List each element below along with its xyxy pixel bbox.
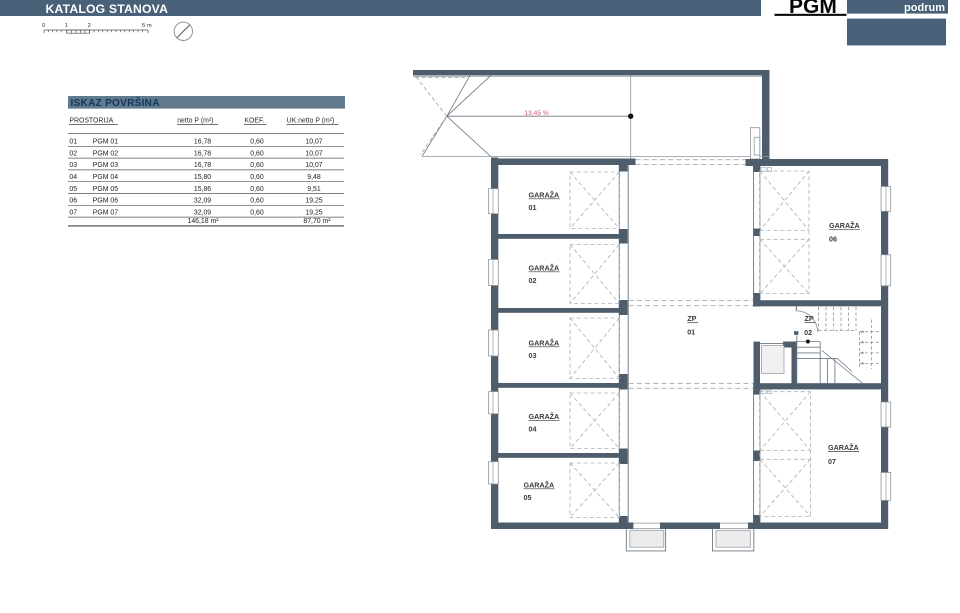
svg-text:0,60: 0,60 bbox=[250, 198, 264, 205]
svg-text:9,51: 9,51 bbox=[307, 186, 321, 193]
svg-text:GARAŽA: GARAŽA bbox=[529, 338, 560, 347]
svg-text:PGM 06: PGM 06 bbox=[93, 198, 118, 205]
svg-text:10,07: 10,07 bbox=[305, 162, 322, 169]
svg-text:146,18 m²: 146,18 m² bbox=[187, 218, 219, 225]
svg-text:ZP: ZP bbox=[805, 314, 814, 323]
svg-text:0,60: 0,60 bbox=[250, 139, 264, 146]
svg-text:02: 02 bbox=[529, 276, 537, 285]
svg-text:0,60: 0,60 bbox=[250, 186, 264, 193]
svg-text:PGM 05: PGM 05 bbox=[93, 186, 118, 193]
svg-text:16,78: 16,78 bbox=[194, 139, 211, 146]
svg-text:19,25: 19,25 bbox=[305, 198, 322, 205]
svg-text:netto P (m²): netto P (m²) bbox=[177, 118, 213, 125]
svg-text:15,86: 15,86 bbox=[194, 186, 211, 193]
svg-text:32,09: 32,09 bbox=[194, 198, 211, 205]
svg-text:GARAŽA: GARAŽA bbox=[829, 221, 860, 230]
svg-text:32,09: 32,09 bbox=[194, 209, 211, 216]
svg-text:GARAŽA: GARAŽA bbox=[529, 412, 560, 421]
svg-text:16,78: 16,78 bbox=[194, 150, 211, 157]
svg-text:0,60: 0,60 bbox=[250, 162, 264, 169]
svg-text:16,78: 16,78 bbox=[194, 162, 211, 169]
svg-text:2: 2 bbox=[88, 23, 91, 29]
svg-text:GARAŽA: GARAŽA bbox=[828, 443, 859, 452]
svg-text:UK.netto P (m²): UK.netto P (m²) bbox=[287, 118, 335, 125]
svg-text:0,60: 0,60 bbox=[250, 150, 264, 157]
svg-text:10,07: 10,07 bbox=[305, 139, 322, 146]
svg-text:01: 01 bbox=[687, 328, 695, 337]
svg-text:PGM 03: PGM 03 bbox=[93, 162, 118, 169]
svg-text:0,60: 0,60 bbox=[250, 174, 264, 181]
svg-text:04: 04 bbox=[69, 174, 77, 181]
svg-text:02: 02 bbox=[69, 150, 77, 157]
svg-text:ISKAZ POVRŠINA: ISKAZ POVRŠINA bbox=[71, 96, 160, 109]
svg-text:GARAŽA: GARAŽA bbox=[529, 263, 560, 272]
svg-text:GARAŽA: GARAŽA bbox=[524, 480, 555, 489]
svg-text:0,60: 0,60 bbox=[250, 209, 264, 216]
svg-text:10,07: 10,07 bbox=[305, 150, 322, 157]
svg-text:0: 0 bbox=[42, 23, 45, 29]
svg-text:06: 06 bbox=[829, 235, 837, 244]
svg-text:5 m: 5 m bbox=[142, 23, 152, 29]
svg-text:1: 1 bbox=[65, 23, 68, 29]
svg-text:01: 01 bbox=[529, 203, 537, 212]
svg-text:01: 01 bbox=[69, 139, 77, 146]
svg-text:19,25: 19,25 bbox=[305, 209, 322, 216]
svg-text:87,70 m²: 87,70 m² bbox=[303, 218, 331, 225]
svg-text:PROSTORIJA: PROSTORIJA bbox=[69, 118, 113, 125]
svg-text:PGM 07: PGM 07 bbox=[93, 209, 118, 216]
svg-text:KATALOG STANOVA: KATALOG STANOVA bbox=[46, 2, 169, 16]
svg-text:15,80: 15,80 bbox=[194, 174, 211, 181]
svg-text:03: 03 bbox=[529, 351, 537, 360]
svg-text:podrum: podrum bbox=[904, 2, 945, 14]
svg-text:9,48: 9,48 bbox=[307, 174, 321, 181]
svg-text:07: 07 bbox=[828, 457, 836, 466]
svg-text:06: 06 bbox=[69, 198, 77, 205]
svg-text:03: 03 bbox=[69, 162, 77, 169]
svg-text:05: 05 bbox=[524, 493, 532, 502]
svg-text:GARAŽA: GARAŽA bbox=[529, 190, 560, 199]
svg-text:07: 07 bbox=[69, 209, 77, 216]
svg-text:02: 02 bbox=[804, 328, 812, 337]
svg-text:PGM 04: PGM 04 bbox=[93, 174, 118, 181]
svg-text:PGM 01: PGM 01 bbox=[93, 139, 118, 146]
svg-text:04: 04 bbox=[529, 424, 537, 433]
svg-text:PGM 02: PGM 02 bbox=[93, 150, 118, 157]
svg-text:ZP: ZP bbox=[687, 314, 696, 323]
svg-text:KOEF.: KOEF. bbox=[244, 118, 264, 125]
svg-text:13,45 %: 13,45 % bbox=[525, 110, 549, 117]
svg-text:05: 05 bbox=[69, 186, 77, 193]
